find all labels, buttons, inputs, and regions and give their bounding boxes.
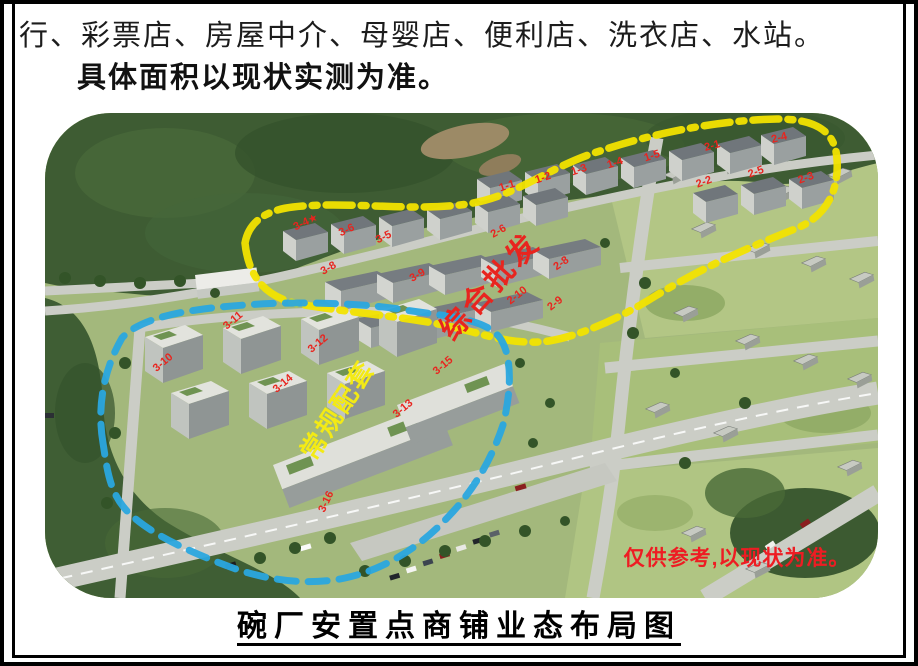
paragraph-line-1: 行、彩票店、房屋中介、母婴店、便利店、洗衣店、水站。 [19,12,825,54]
page-inner-border: 行、彩票店、房屋中介、母婴店、便利店、洗衣店、水站。 具体面积以现状实测为准。 [12,4,906,658]
site-plan-photo: 综合批发 常规配套 仅供参考,以现状为准。 1-11-21-31-41-52-1… [45,113,878,598]
caption-title: 碗厂安置点商铺业态布局图 [15,601,903,645]
disclaimer-text: 仅供参考,以现状为准。 [623,546,851,570]
paragraph-line-2: 具体面积以现状实测为准。 [77,54,449,96]
document-page: 行、彩票店、房屋中介、母婴店、便利店、洗衣店、水站。 具体面积以现状实测为准。 [0,0,918,666]
aerial-scene: 综合批发 常规配套 仅供参考,以现状为准。 1-11-21-31-41-52-1… [45,113,878,598]
